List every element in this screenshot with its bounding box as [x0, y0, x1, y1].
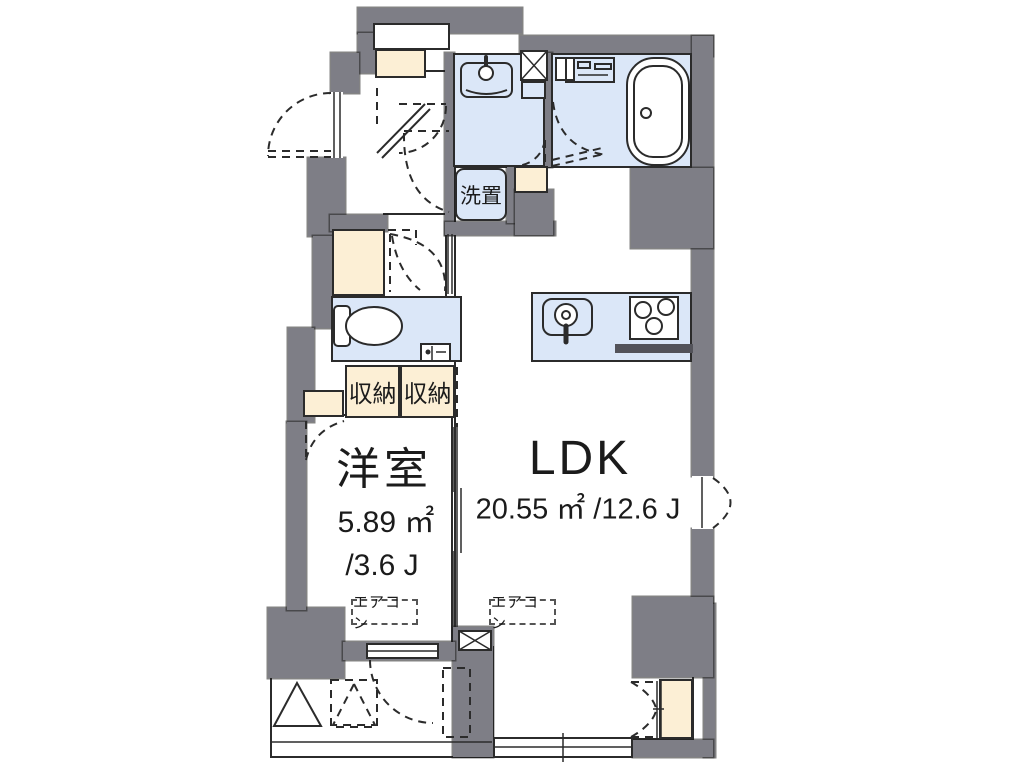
- ldk-name: LDK: [529, 435, 631, 483]
- toilet-room: [331, 296, 462, 362]
- ldk-balcony-window: [493, 737, 633, 758]
- wall: [692, 36, 713, 476]
- storage-closet-2: 収納: [400, 365, 455, 418]
- kitchen-partition-bar: [615, 344, 693, 353]
- western-room-closet: [303, 390, 344, 417]
- aircon-text: エアコン: [353, 591, 416, 633]
- laundry-space: 洗置: [455, 168, 507, 221]
- wall: [692, 529, 713, 604]
- storage-closet-1: 収納: [345, 365, 400, 418]
- wall: [331, 53, 359, 93]
- wall: [287, 422, 306, 610]
- ldk-area: 20.55 ㎡ /12.6 J: [476, 496, 681, 525]
- laundry-side-storage: [514, 166, 548, 193]
- entry-storage: [375, 49, 426, 78]
- entry-door-opening: [330, 92, 343, 158]
- aircon-label-western: エアコン: [351, 599, 418, 625]
- aircon-text: エアコン: [491, 591, 554, 633]
- pipe-space-bottom: [458, 630, 492, 651]
- entry-shoe-cabinet: [373, 23, 450, 50]
- laundry-label: 洗置: [460, 180, 502, 210]
- floorplan: 洗置 収納 収納: [0, 0, 1019, 775]
- bathroom: [551, 53, 692, 168]
- ldk-side-door-opening: [692, 476, 713, 529]
- ldk-closet: [659, 679, 693, 739]
- wall: [633, 597, 713, 677]
- western-room-name: 洋室: [336, 448, 432, 492]
- western-room-window: [366, 643, 439, 659]
- western-room-area-jo: /3.6 J: [345, 551, 418, 581]
- pipe-space-top: [520, 50, 548, 81]
- wall: [633, 740, 713, 757]
- corridor-floor: [383, 213, 447, 300]
- hall-storage: [332, 229, 385, 296]
- western-room-area-m2: 5.89 ㎡: [338, 508, 435, 538]
- aircon-label-ldk: エアコン: [489, 599, 556, 625]
- storage-label: 収納: [349, 374, 397, 409]
- wall: [268, 608, 344, 678]
- storage-label: 収納: [404, 374, 452, 409]
- wall: [515, 190, 553, 235]
- wall: [631, 168, 713, 248]
- pipe-space-top-small: [521, 81, 546, 99]
